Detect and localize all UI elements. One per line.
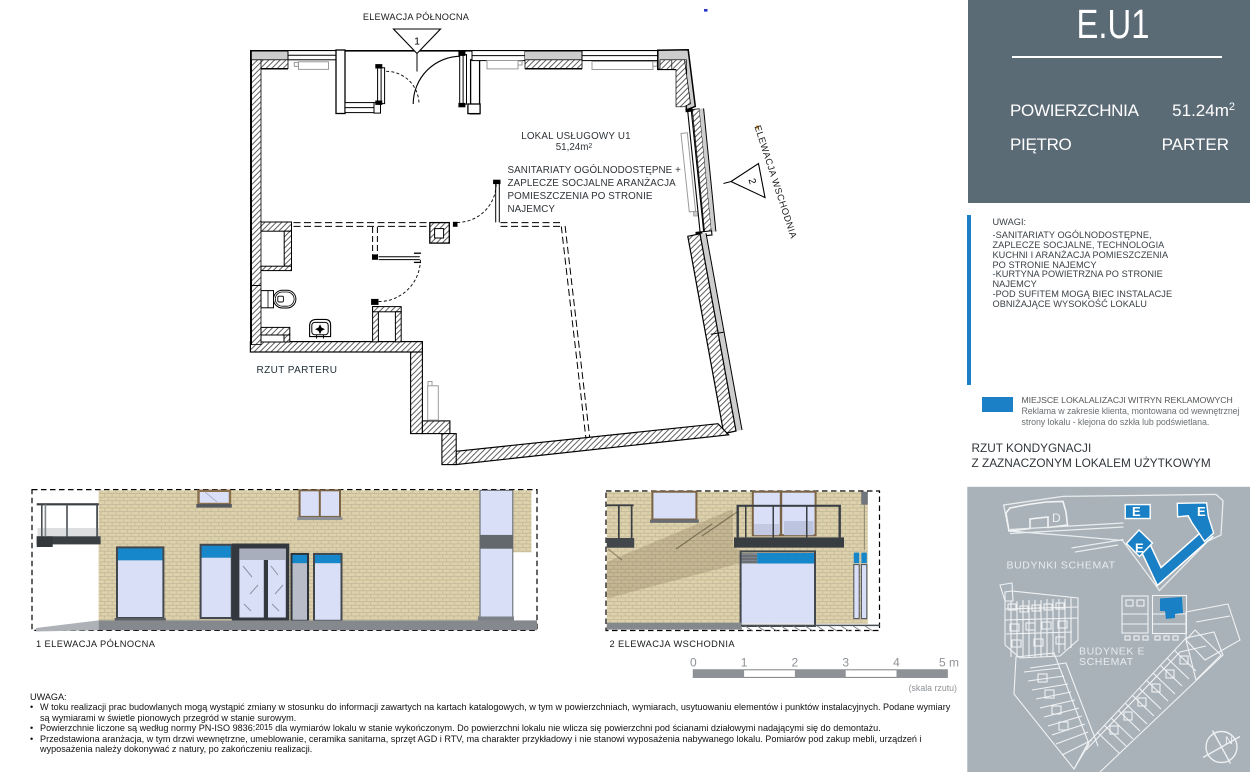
svg-text:5 m: 5 m	[939, 656, 959, 670]
svg-text:SCHEMAT: SCHEMAT	[1079, 656, 1134, 668]
svg-text:D: D	[1052, 511, 1061, 525]
svg-text:E: E	[1132, 504, 1141, 519]
svg-text:E: E	[1135, 541, 1144, 556]
svg-text:0: 0	[690, 656, 697, 670]
svg-text:1: 1	[414, 36, 420, 48]
svg-text:2: 2	[792, 656, 799, 670]
svg-text:1: 1	[741, 656, 748, 670]
svg-text:BUDYNKI SCHEMAT: BUDYNKI SCHEMAT	[1007, 560, 1116, 572]
svg-text:3: 3	[842, 656, 849, 670]
svg-text:4: 4	[893, 656, 900, 670]
svg-text:N: N	[1225, 735, 1233, 747]
svg-text:E: E	[1197, 504, 1206, 519]
